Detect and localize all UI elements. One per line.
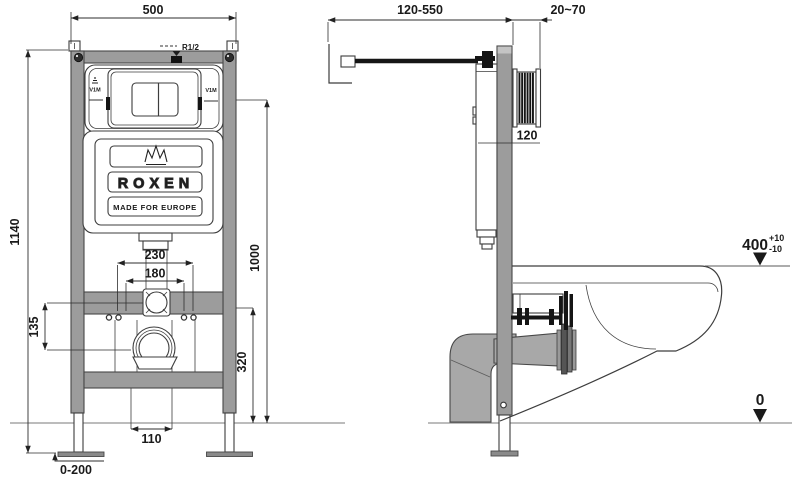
svg-text:0: 0 [756,392,765,409]
cistern: ROXEN MADE FOR EUROPE [83,131,223,289]
water-inlet-fitting [143,289,170,316]
brand-tagline: MADE FOR EUROPE [113,203,197,212]
svg-text:1000: 1000 [248,244,262,272]
svg-text:230: 230 [145,248,166,262]
svg-text:20~70: 20~70 [550,3,585,17]
dim-plate-height: 1000 [236,100,267,423]
inlet-thread-label: R1/2 [182,43,199,52]
rim-height-marker: 400 +10 -10 [705,233,790,266]
technical-drawing: R1/2 V1M V1M [0,0,800,484]
svg-text:135: 135 [27,317,41,338]
lower-cross-rail [84,372,223,388]
left-column [71,51,84,413]
svg-text:-10: -10 [769,244,782,254]
svg-text:400: 400 [742,237,768,254]
drain-outlet [133,327,177,369]
svg-text:500: 500 [143,3,164,17]
dim-wall-finish: 20~70 [501,3,586,68]
wall-hanger-brackets [69,41,238,51]
svg-text:180: 180 [145,267,166,281]
svg-text:V1M: V1M [205,88,217,94]
svg-text:110: 110 [141,432,161,446]
support-rod [329,44,495,83]
svg-text:120: 120 [517,129,538,143]
installation-diagram: R1/2 V1M V1M [0,0,800,484]
dim-drain-height: 320 [235,308,253,423]
svg-text:V1M: V1M [89,88,101,94]
flush-actuator-unit [513,69,541,127]
cistern-side [473,64,497,249]
svg-text:320: 320 [235,352,249,373]
floor-level-marker: 0 [753,392,767,423]
dim-rod-range: 120-550 [328,3,513,45]
brand-name: ROXEN [118,176,195,192]
side-view: 120 120-550 [328,3,792,456]
front-view: R1/2 V1M V1M [8,3,345,477]
flush-plate-module: V1M V1M [85,65,223,132]
svg-text:120-550: 120-550 [397,3,443,17]
dim-frame-width: 500 [71,3,236,44]
svg-text:0-200: 0-200 [60,463,92,477]
svg-text:1140: 1140 [8,218,22,245]
dim-drain-pipe: 110 [131,429,172,446]
flush-buttons [132,83,178,116]
dim-frame-height: 1140 [8,50,68,453]
top-rail [71,51,236,63]
svg-text:+10: +10 [769,233,784,243]
